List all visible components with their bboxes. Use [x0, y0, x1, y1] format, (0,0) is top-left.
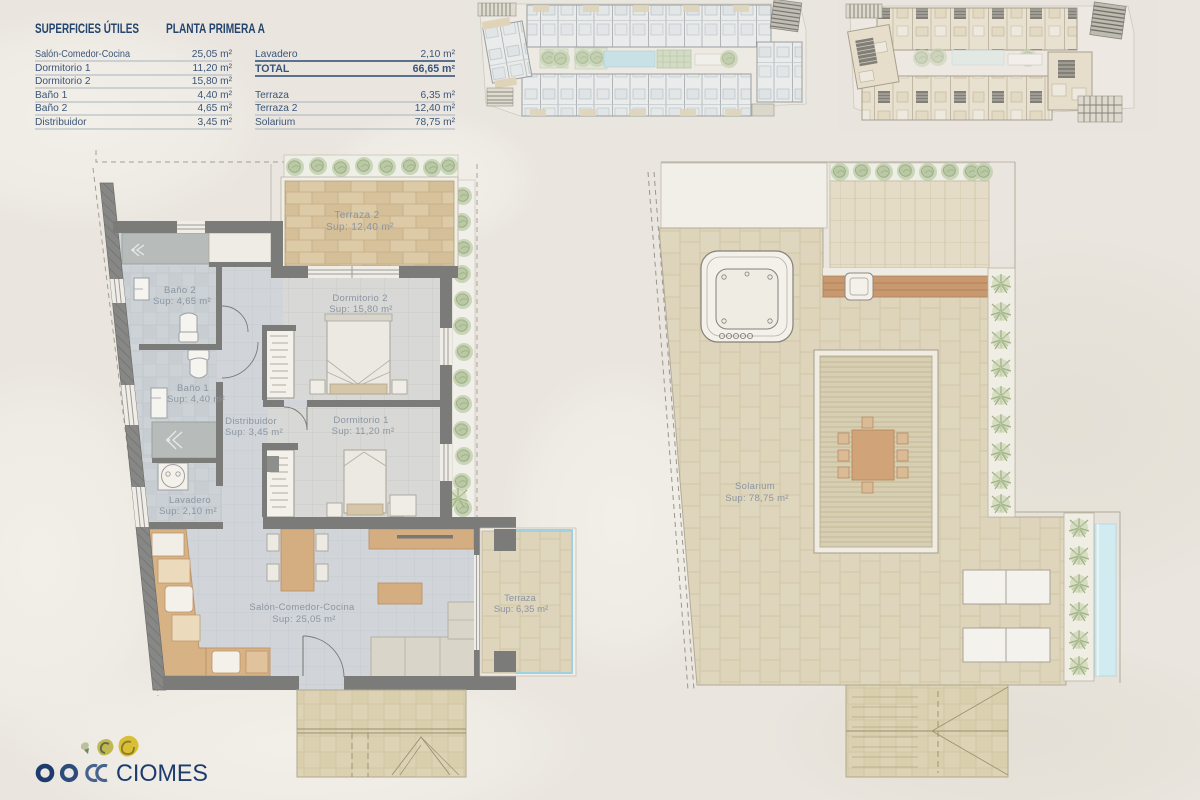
svg-text:Sup: 4,40 m²: Sup: 4,40 m²: [167, 394, 225, 405]
svg-text:Dormitorio 1: Dormitorio 1: [333, 415, 388, 426]
svg-text:Lavadero: Lavadero: [255, 49, 298, 60]
svg-text:Solarium: Solarium: [255, 117, 295, 128]
svg-text:Baño 1: Baño 1: [177, 383, 209, 394]
svg-text:PLANTA PRIMERA A: PLANTA PRIMERA A: [166, 21, 265, 36]
svg-text:Sup: 6,35 m²: Sup: 6,35 m²: [494, 604, 548, 615]
svg-text:25,05 m²: 25,05 m²: [192, 49, 233, 60]
svg-text:CIOMES: CIOMES: [116, 760, 208, 787]
svg-text:Solarium: Solarium: [735, 481, 775, 492]
svg-text:Dormitorio 1: Dormitorio 1: [35, 63, 91, 74]
svg-text:Sup: 4,65 m²: Sup: 4,65 m²: [153, 296, 211, 307]
svg-text:6,35 m²: 6,35 m²: [420, 90, 455, 101]
svg-text:Sup: 3,45 m²: Sup: 3,45 m²: [225, 427, 283, 438]
svg-text:Terraza 2: Terraza 2: [334, 210, 379, 221]
svg-text:Salón-Comedor-Cocina: Salón-Comedor-Cocina: [249, 602, 355, 613]
svg-text:Sup: 11,20 m²: Sup: 11,20 m²: [332, 426, 395, 437]
svg-text:Dormitorio 2: Dormitorio 2: [332, 293, 387, 304]
svg-text:15,80 m²: 15,80 m²: [192, 76, 233, 87]
svg-text:Salón-Comedor-Cocina: Salón-Comedor-Cocina: [35, 49, 130, 60]
svg-text:Baño 2: Baño 2: [35, 103, 68, 114]
svg-text:Baño 1: Baño 1: [35, 90, 68, 101]
svg-text:Terraza: Terraza: [255, 90, 289, 101]
svg-text:Sup: 12,40 m²: Sup: 12,40 m²: [326, 222, 394, 233]
svg-text:12,40 m²: 12,40 m²: [415, 103, 456, 114]
svg-text:Terraza 2: Terraza 2: [255, 103, 298, 114]
svg-text:Sup: 78,75 m²: Sup: 78,75 m²: [725, 493, 789, 504]
svg-text:Sup: 2,10 m²: Sup: 2,10 m²: [159, 506, 217, 517]
svg-text:Terraza: Terraza: [504, 593, 536, 604]
svg-text:Sup: 15,80 m²: Sup: 15,80 m²: [329, 304, 393, 315]
svg-text:3,45 m²: 3,45 m²: [197, 117, 232, 128]
svg-text:Lavadero: Lavadero: [169, 495, 211, 506]
svg-text:11,20 m²: 11,20 m²: [193, 63, 233, 74]
svg-text:Distribuidor: Distribuidor: [225, 416, 277, 427]
svg-text:2,10 m²: 2,10 m²: [420, 49, 455, 60]
svg-text:Sup: 25,05 m²: Sup: 25,05 m²: [272, 614, 336, 625]
svg-text:SUPERFICIES ÚTILES: SUPERFICIES ÚTILES: [35, 21, 139, 36]
svg-text:Distribuidor: Distribuidor: [35, 117, 87, 128]
svg-text:78,75 m²: 78,75 m²: [415, 117, 456, 128]
svg-text:Dormitorio 2: Dormitorio 2: [35, 76, 91, 87]
svg-text:4,65 m²: 4,65 m²: [197, 103, 232, 114]
svg-text:Baño 2: Baño 2: [164, 285, 196, 296]
svg-text:TOTAL: TOTAL: [255, 63, 290, 75]
svg-text:4,40 m²: 4,40 m²: [197, 90, 232, 101]
svg-text:66,65 m²: 66,65 m²: [413, 63, 456, 75]
